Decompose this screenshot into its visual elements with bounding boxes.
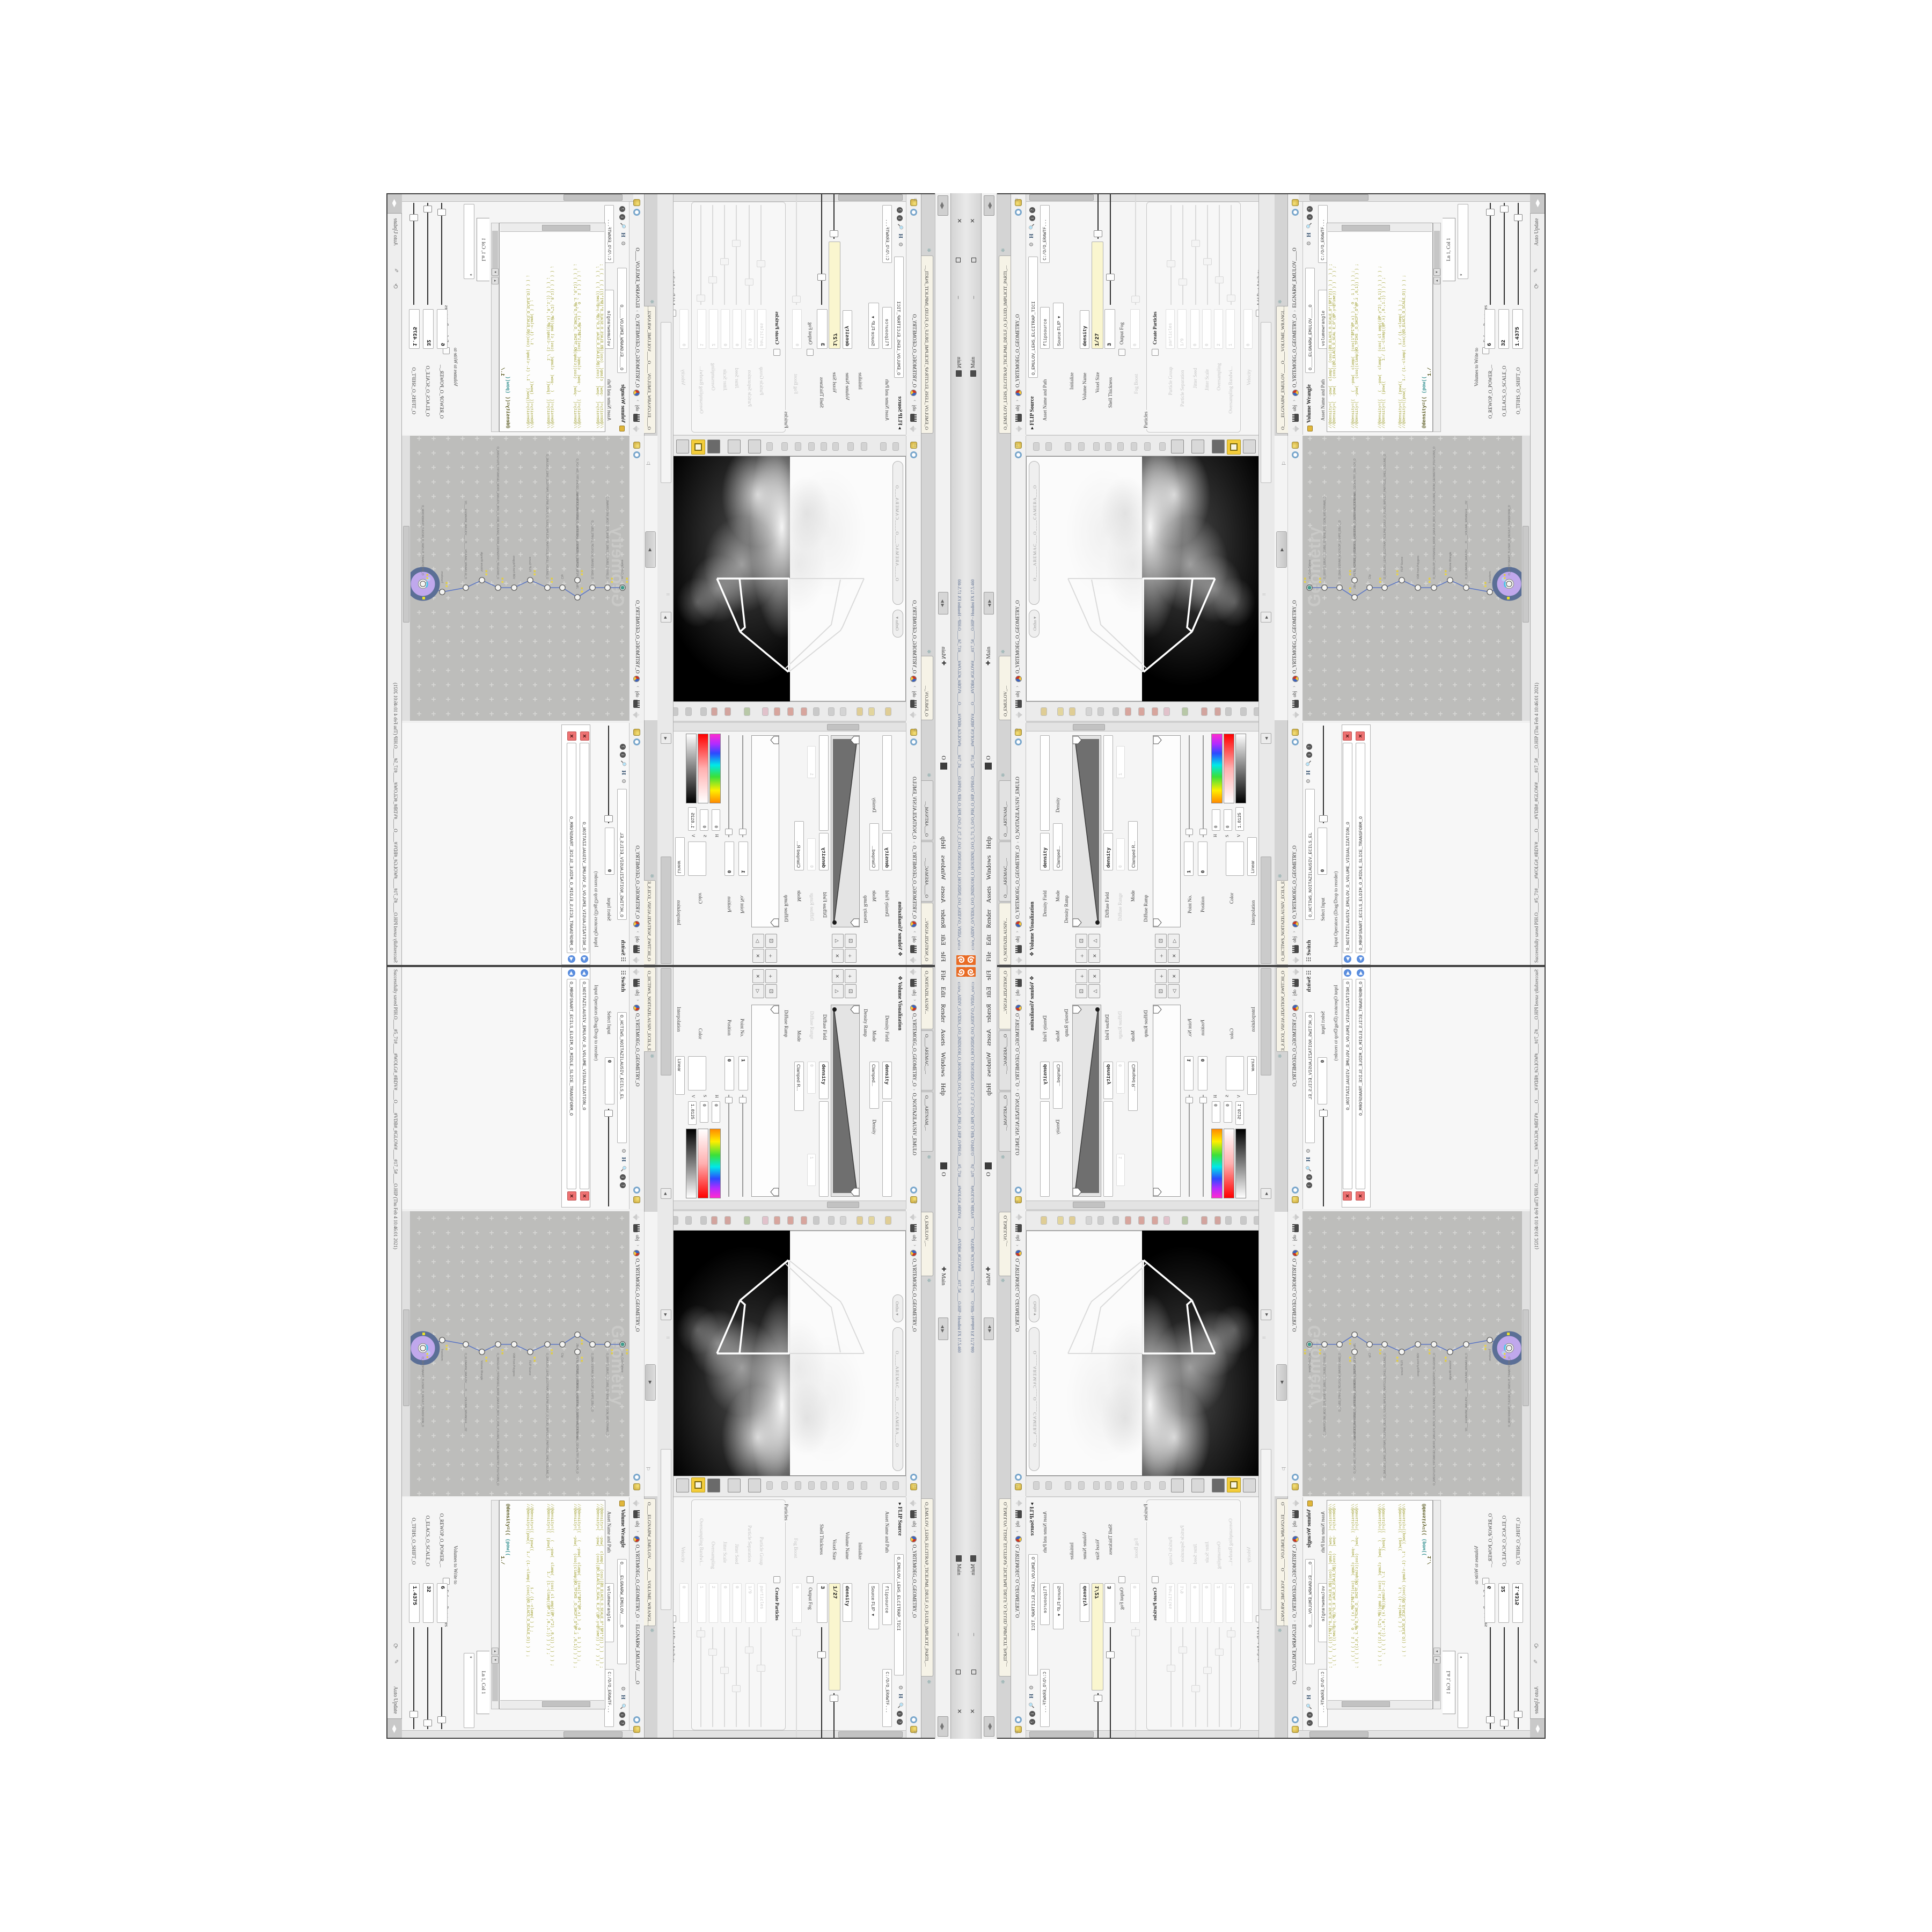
svg-text:O_HCTIWS_YRTEMOEG_LANRETXE_O_I: O_HCTIWS_YRTEMOEG_LANRETXE_O_INTERNAL_EX… <box>1353 458 1357 572</box>
svg-text:Transform: Transform <box>1489 571 1492 583</box>
svg-text:O_ERHPS_EBUC_O_CUBE_SPHERE_POL: O_ERHPS_EBUC_O_CUBE_SPHERE_POLYGON_WIREF… <box>605 496 609 579</box>
svg-text:Clip: Clip <box>1368 574 1372 579</box>
svg-text:O_MROFSNART_TLUSER_O_RESULT_TR: O_MROFSNART_TLUSER_O_RESULT_TRANSFORM_O <box>421 1357 424 1427</box>
svg-text:O_HCTIWS_YRTEMOEG_LANRETXE_O_I: O_HCTIWS_YRTEMOEG_LANRETXE_O_INTERNAL_EX… <box>1353 1360 1357 1474</box>
svg-text:O_MROFSNART_TLUSER_O_RESULT_TR: O_MROFSNART_TLUSER_O_RESULT_TRANSFORM_O <box>1508 1357 1511 1427</box>
svg-text:O_ERHPS_EBUC_O_CUBE_SPHERE_POL: O_ERHPS_EBUC_O_CUBE_SPHERE_POLYGON_WIREF… <box>1323 1353 1327 1436</box>
svg-text:an_CubeSphere: an_CubeSphere <box>1308 1353 1312 1373</box>
svg-text:O_EMULOV_LEHS_ELCITRAP_TICILPM: O_EMULOV_LEHS_ELCITRAP_TICILPMI_DIULF_O_… <box>545 1353 548 1478</box>
svg-text:Clip: Clip <box>560 574 563 579</box>
svg-text:O_SNOGLOP_YRTEMOEG_MORF_EMULOV: O_SNOGLOP_YRTEMOEG_MORF_EMULOV_BDV_O_VDB… <box>1433 1353 1436 1485</box>
svg-text:O_HCTIWS_YRTEMOEG_LANRETXE_O_I: O_HCTIWS_YRTEMOEG_LANRETXE_O_INTERNAL_EX… <box>575 1360 579 1474</box>
svg-text:O_ELGNARW_EMULOV____O____VOLUM: O_ELGNARW_EMULOV____O____VOLUME_WRANGLE_… <box>1465 501 1468 579</box>
svg-text:Transform: Transform <box>440 1349 443 1361</box>
svg-text:O_HCTIWS_YRTEMOEG_LANRETXE_O_I: O_HCTIWS_YRTEMOEG_LANRETXE_O_INTERNAL_EX… <box>575 458 579 572</box>
svg-text:O_SNOGLOP_YRTEMOEG_MORF_EMULOV: O_SNOGLOP_YRTEMOEG_MORF_EMULOV_BDV_O_VDB… <box>496 447 499 579</box>
svg-text:O_SNOGLOP_YRTEMOEG_MORF_EMULOV: O_SNOGLOP_YRTEMOEG_MORF_EMULOV_BDV_O_VDB… <box>1433 447 1436 579</box>
svg-text:Geometry: Geometry <box>608 526 627 607</box>
svg-text:O_SNOGLOP_YRTEMOEG_MORF_EMULOV: O_SNOGLOP_YRTEMOEG_MORF_EMULOV_BDV_O_VDB… <box>496 1353 499 1485</box>
svg-text:O_EMULOV_LEHS_ELCITRAP_TICILPM: O_EMULOV_LEHS_ELCITRAP_TICILPMI_DIULF_O_… <box>1384 454 1387 579</box>
svg-text:O_ERHPS_EBUC_O_CUBE_SPHERE_POL: O_ERHPS_EBUC_O_CUBE_SPHERE_POLYGON_WIREF… <box>1323 496 1327 579</box>
svg-text:VDB from Polygons: VDB from Polygons <box>1417 555 1420 579</box>
svg-text:FLIP Source: FLIP Source <box>528 557 531 572</box>
svg-text:Geometry: Geometry <box>1305 1325 1324 1406</box>
svg-text:Volume Wrangle: Volume Wrangle <box>480 552 483 572</box>
svg-text:Volume Wrangle: Volume Wrangle <box>480 1360 483 1380</box>
svg-text:O_EMASFERAW_NOGYLOP_ERHPS_EBUC: O_EMASFERAW_NOGYLOP_ERHPS_EBUC_O <box>590 520 594 579</box>
svg-text:an_CubeSphere: an_CubeSphere <box>620 559 624 579</box>
svg-text:an_CubeSphere: an_CubeSphere <box>620 1353 624 1373</box>
svg-text:O_MROFSNART_TLUSER_O_RESULT_TR: O_MROFSNART_TLUSER_O_RESULT_TRANSFORM_O <box>1508 505 1511 575</box>
svg-text:O_EMULOV_LEHS_ELCITRAP_TICILPM: O_EMULOV_LEHS_ELCITRAP_TICILPMI_DIULF_O_… <box>545 454 548 579</box>
svg-text:Volume Wrangle: Volume Wrangle <box>1449 552 1452 572</box>
svg-text:VDB from Polygons: VDB from Polygons <box>1417 1353 1420 1377</box>
svg-text:Transform: Transform <box>1489 1349 1492 1361</box>
svg-text:VDB from Polygons: VDB from Polygons <box>512 555 515 579</box>
svg-text:O_EMASFERAW_NOGYLOP_ERHPS_EBUC: O_EMASFERAW_NOGYLOP_ERHPS_EBUC_O <box>1338 1353 1342 1412</box>
svg-text:O_ELGNARW_EMULOV____O____VOLUM: O_ELGNARW_EMULOV____O____VOLUME_WRANGLE_… <box>464 501 467 579</box>
svg-text:O_ERHPS_EBUC_O_CUBE_SPHERE_POL: O_ERHPS_EBUC_O_CUBE_SPHERE_POLYGON_WIREF… <box>605 1353 609 1436</box>
svg-text:O_EMULOV_LEHS_ELCITRAP_TICILPM: O_EMULOV_LEHS_ELCITRAP_TICILPMI_DIULF_O_… <box>1384 1353 1387 1478</box>
svg-text:Clip: Clip <box>560 1353 563 1358</box>
svg-text:O_EMASFERAW_NOGYLOP_ERHPS_EBUC: O_EMASFERAW_NOGYLOP_ERHPS_EBUC_O <box>590 1353 594 1412</box>
svg-text:Clip: Clip <box>1368 1353 1372 1358</box>
svg-text:O_EMASFERAW_NOGYLOP_ERHPS_EBUC: O_EMASFERAW_NOGYLOP_ERHPS_EBUC_O <box>1338 520 1342 579</box>
svg-text:O_ELGNARW_EMULOV____O____VOLUM: O_ELGNARW_EMULOV____O____VOLUME_WRANGLE_… <box>464 1353 467 1431</box>
svg-text:Volume Wrangle: Volume Wrangle <box>1449 1360 1452 1380</box>
svg-text:O_ELGNARW_EMULOV____O____VOLUM: O_ELGNARW_EMULOV____O____VOLUME_WRANGLE_… <box>1465 1353 1468 1431</box>
svg-text:FLIP Source: FLIP Source <box>1401 557 1404 572</box>
svg-text:Transform: Transform <box>440 571 443 583</box>
svg-text:FLIP Source: FLIP Source <box>528 1360 531 1375</box>
svg-text:Geometry: Geometry <box>608 1325 627 1406</box>
svg-text:Geometry: Geometry <box>1305 526 1324 607</box>
svg-text:an_CubeSphere: an_CubeSphere <box>1308 559 1312 579</box>
svg-text:VDB from Polygons: VDB from Polygons <box>512 1353 515 1377</box>
svg-text:FLIP Source: FLIP Source <box>1401 1360 1404 1375</box>
svg-text:O_MROFSNART_TLUSER_O_RESULT_TR: O_MROFSNART_TLUSER_O_RESULT_TRANSFORM_O <box>421 505 424 575</box>
